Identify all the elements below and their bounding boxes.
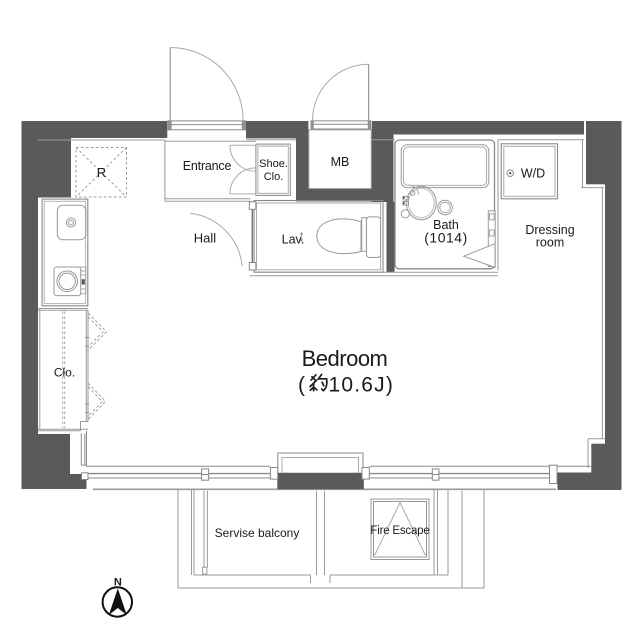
svg-text:Fire Escape: Fire Escape [370, 525, 429, 537]
svg-text:Servise balcony: Servise balcony [215, 526, 300, 540]
svg-text:W/D: W/D [521, 167, 545, 181]
svg-text:Clo.: Clo. [54, 366, 75, 380]
svg-text:Entrance: Entrance [183, 159, 232, 173]
svg-text:10.6J): 10.6J) [329, 374, 395, 397]
svg-text:Clo.: Clo. [264, 171, 284, 183]
svg-text:room: room [536, 236, 564, 250]
svg-text:Bedroom: Bedroom [302, 346, 388, 371]
svg-text:N: N [114, 577, 122, 589]
svg-text:(1014): (1014) [424, 230, 467, 246]
svg-text:(: ( [298, 374, 305, 397]
svg-text:Hall: Hall [194, 231, 217, 246]
svg-text:R: R [97, 165, 106, 180]
svg-text:Shoe.: Shoe. [259, 158, 288, 170]
svg-text:MB: MB [331, 155, 350, 169]
